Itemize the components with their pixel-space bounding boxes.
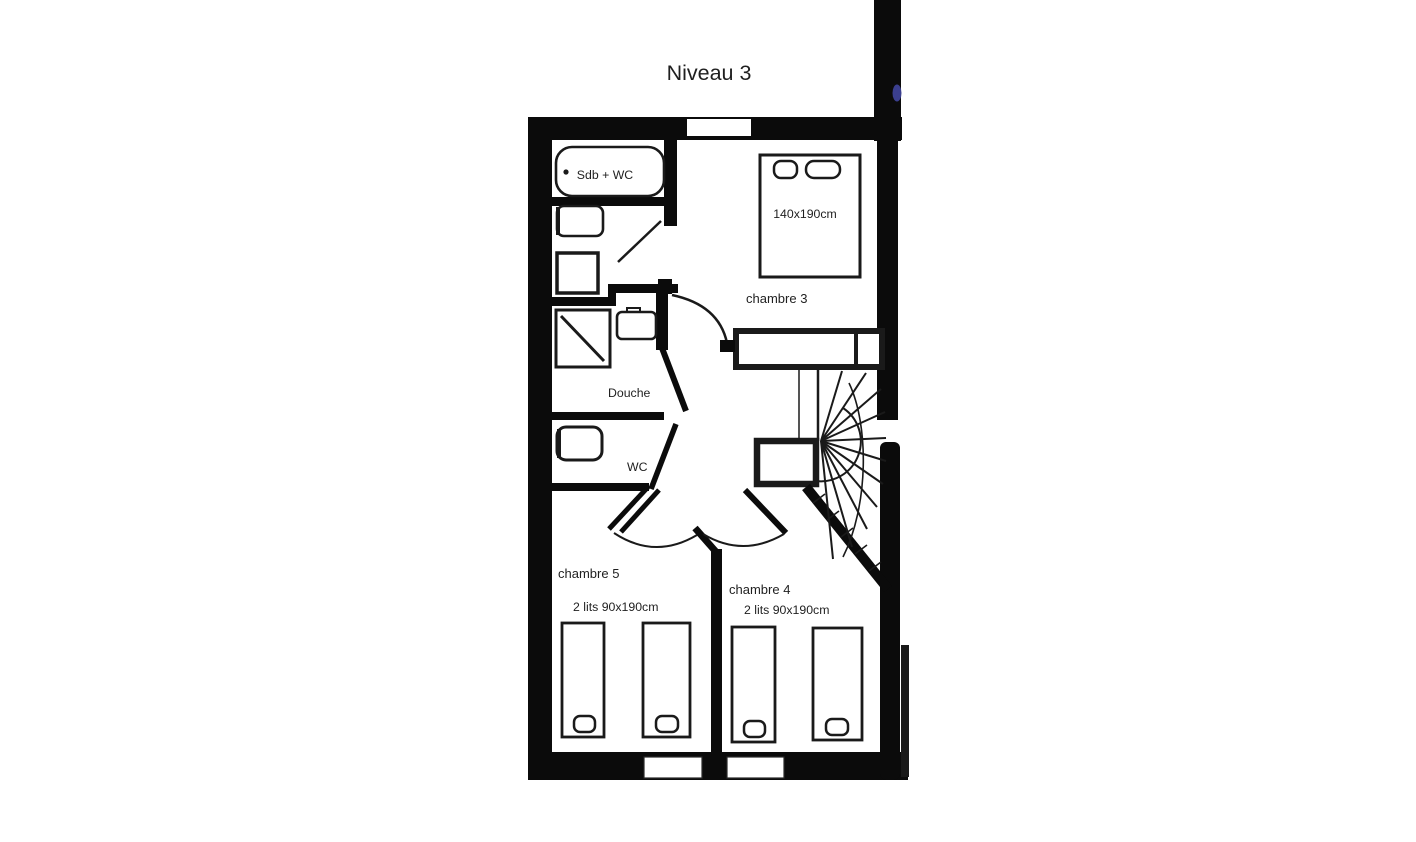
stair-tread bbox=[821, 438, 886, 441]
wall-stair-bedroom4-diagonal bbox=[806, 487, 888, 589]
bedroom3-label: chambre 3 bbox=[746, 291, 807, 306]
wall-right-upper bbox=[877, 130, 898, 420]
window-bottom-left bbox=[644, 757, 702, 778]
shower-sink bbox=[617, 312, 656, 339]
closet bbox=[736, 331, 882, 367]
window-bottom-right bbox=[727, 757, 784, 778]
window-top bbox=[687, 119, 751, 136]
wc-door-leaf bbox=[651, 424, 676, 489]
stairs bbox=[816, 371, 886, 559]
wall-bathroom-bedroom3 bbox=[664, 133, 677, 226]
bedroom3-door-arc bbox=[672, 295, 727, 343]
shower-room-label: Douche bbox=[608, 386, 651, 400]
bedroom3-door-hinge-stub bbox=[658, 279, 672, 294]
bedroom3-bed-size-label: 140x190cm bbox=[773, 207, 837, 221]
wc-toilet bbox=[557, 427, 602, 460]
bathroom-label: Sdb + WC bbox=[577, 168, 634, 182]
plan-title: Niveau 3 bbox=[667, 61, 752, 85]
bedroom4-pillow-2 bbox=[826, 719, 848, 735]
floor-plan-svg: Niveau 3 Sdb + WC 140x190cm chambre 3 Do… bbox=[0, 0, 1416, 842]
bedroom5-pillow-2 bbox=[656, 716, 678, 732]
floor-plan-page: Niveau 3 Sdb + WC 140x190cm chambre 3 Do… bbox=[0, 0, 1416, 842]
bedroom3-door-end-stub bbox=[720, 340, 735, 352]
bedroom4-door-leaf bbox=[745, 490, 786, 533]
bedroom5-label: chambre 5 bbox=[558, 566, 619, 581]
blue-dot bbox=[893, 85, 902, 102]
stair-tread bbox=[821, 371, 842, 441]
wall-bathroom-shower-left bbox=[552, 297, 614, 306]
bathroom-toilet bbox=[557, 253, 598, 293]
bedroom4-beds-label: 2 lits 90x190cm bbox=[744, 603, 829, 617]
wall-left bbox=[528, 117, 552, 780]
bedroom5-door-arc bbox=[614, 533, 697, 547]
wall-wc-bedroom5 bbox=[552, 483, 649, 491]
wall-shower-wc bbox=[552, 412, 664, 420]
wc-label: WC bbox=[627, 460, 648, 474]
bedroom3-pillow-2 bbox=[806, 161, 840, 178]
bedroom4-label: chambre 4 bbox=[729, 582, 790, 597]
bedroom3-pillow-1 bbox=[774, 161, 797, 178]
bedroom5-pillow-1 bbox=[574, 716, 595, 732]
wall-under-bathtub bbox=[552, 197, 666, 206]
wall-shower-diagonal bbox=[662, 348, 686, 411]
stair-landing-box bbox=[757, 441, 816, 484]
wall-step-connector bbox=[608, 284, 616, 306]
wall-bedroom5-bedroom4 bbox=[711, 549, 722, 780]
wall-right-outer-strip bbox=[901, 645, 909, 777]
bathtub-faucet bbox=[563, 169, 568, 174]
bathroom-sink bbox=[557, 206, 603, 236]
bedroom4-pillow-1 bbox=[744, 721, 765, 737]
bathroom-door-leaf bbox=[618, 221, 661, 262]
wall-right-lower bbox=[880, 442, 900, 780]
bedroom4-door-arc bbox=[703, 534, 784, 546]
bedroom5-beds-label: 2 lits 90x190cm bbox=[573, 600, 658, 614]
